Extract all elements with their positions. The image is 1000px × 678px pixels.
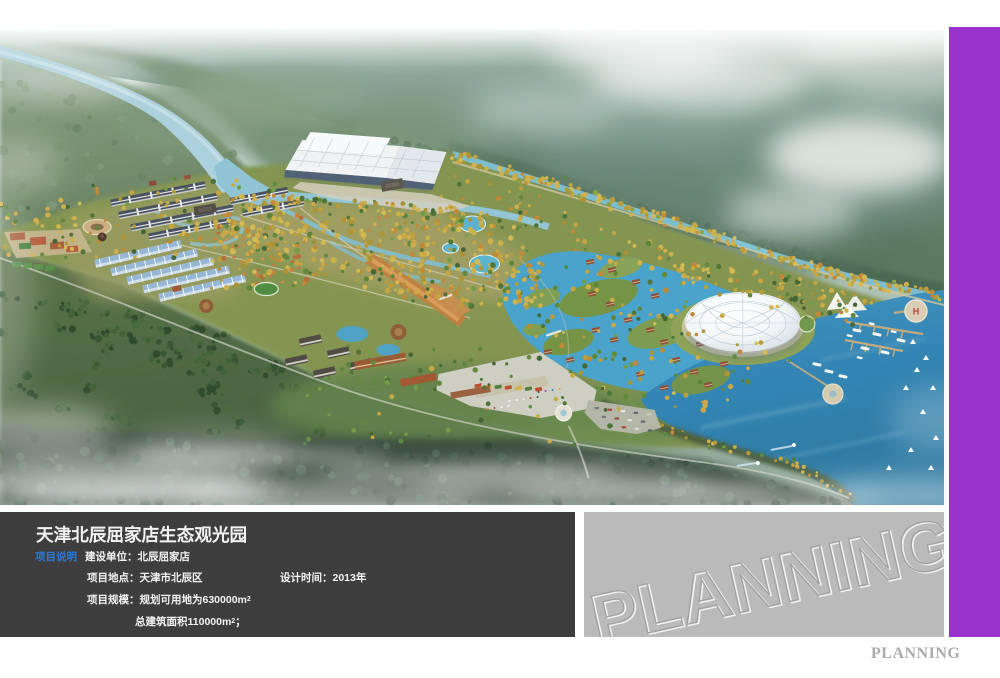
svg-text:PLANNING: PLANNING (584, 512, 944, 637)
